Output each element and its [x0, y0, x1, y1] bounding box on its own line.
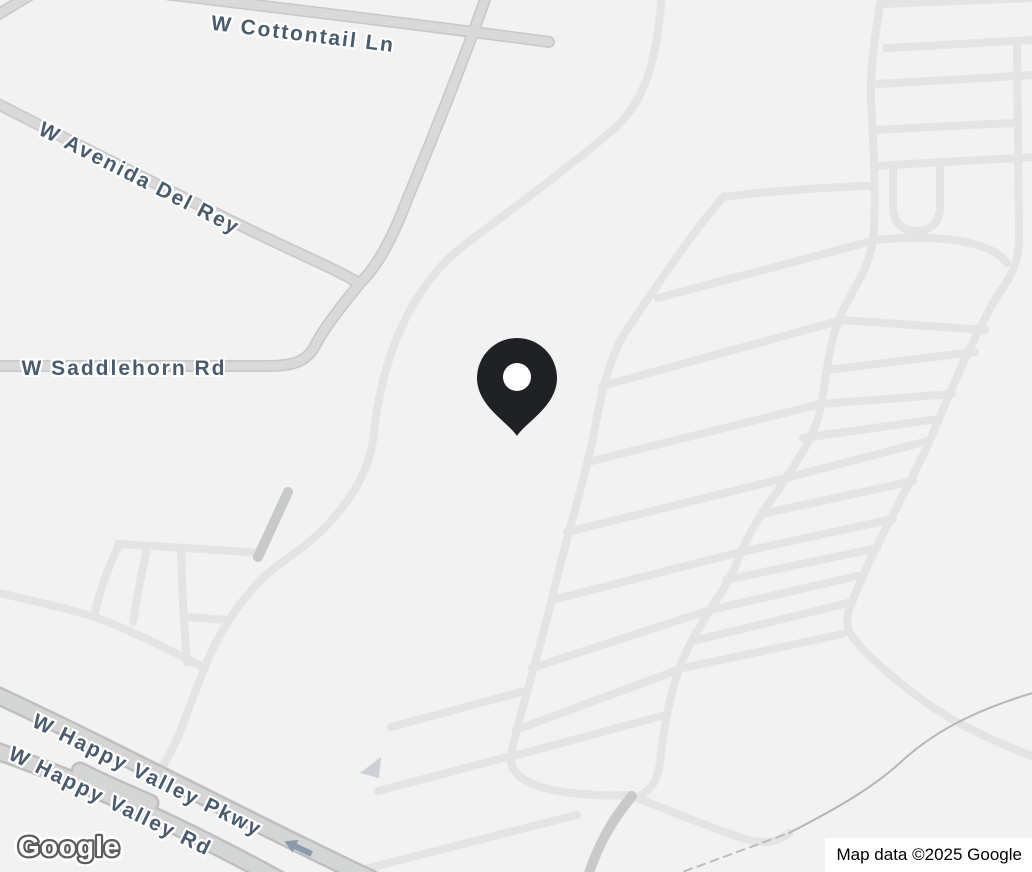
road-segment	[723, 186, 871, 197]
road-segment	[0, 592, 205, 668]
road-segment	[641, 0, 882, 795]
road-segment	[353, 815, 577, 872]
road-segment	[0, 100, 359, 283]
map-canvas[interactable]: W Cottontail LnW Avenida Del ReyW Saddle…	[0, 0, 1032, 872]
location-pin-icon[interactable]	[477, 338, 557, 436]
road-segment	[588, 796, 632, 872]
road-segment	[632, 796, 789, 842]
road-segment	[803, 419, 939, 438]
road-segment	[258, 492, 288, 557]
google-logo-text: Google	[18, 831, 120, 862]
road-segment	[602, 320, 985, 386]
google-logo[interactable]: Google Google	[14, 826, 140, 866]
road-segment	[133, 549, 147, 622]
road-segment	[0, 0, 489, 366]
road-segment	[827, 352, 975, 370]
road-segment	[161, 0, 662, 770]
road-segment	[95, 545, 119, 612]
map-attribution: Map data ©2025 Google	[825, 838, 1032, 872]
trail-path	[789, 692, 1032, 833]
residential-roads	[0, 0, 1032, 872]
road-segment	[886, 40, 1032, 48]
road-segment	[658, 238, 1007, 298]
oneway-triangle-icon	[360, 757, 381, 778]
main-roads	[0, 0, 549, 366]
road-segment	[876, 123, 1018, 130]
road-segment	[181, 550, 187, 662]
map-roads-layer	[0, 0, 1032, 872]
road-segment	[516, 634, 843, 730]
road-segment	[118, 544, 255, 553]
road-segment	[789, 692, 1032, 833]
road-segment	[893, 169, 940, 231]
road-segment	[187, 617, 227, 620]
road-segment	[874, 157, 1032, 166]
road-segment	[884, 0, 1032, 4]
road-segment	[391, 692, 521, 727]
road-segment	[378, 756, 511, 791]
road-segment	[878, 75, 1032, 84]
